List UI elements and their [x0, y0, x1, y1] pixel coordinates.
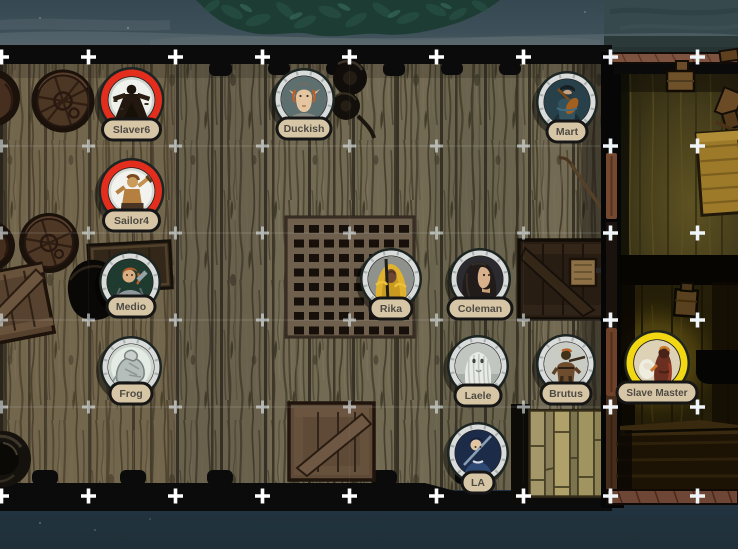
svg-text:Frog: Frog [119, 388, 142, 400]
svg-text:Slave Master: Slave Master [626, 388, 687, 399]
svg-text:LA: LA [471, 477, 485, 489]
svg-text:Sailor4: Sailor4 [114, 215, 149, 227]
svg-text:Brutus: Brutus [549, 388, 583, 400]
svg-text:Coleman: Coleman [458, 303, 502, 315]
svg-text:Slaver6: Slaver6 [113, 124, 151, 136]
svg-text:Mart: Mart [556, 126, 579, 138]
svg-text:Medio: Medio [116, 301, 146, 313]
svg-text:Duckish: Duckish [284, 123, 325, 135]
svg-text:Laele: Laele [465, 390, 492, 402]
svg-text:Rika: Rika [380, 303, 402, 315]
